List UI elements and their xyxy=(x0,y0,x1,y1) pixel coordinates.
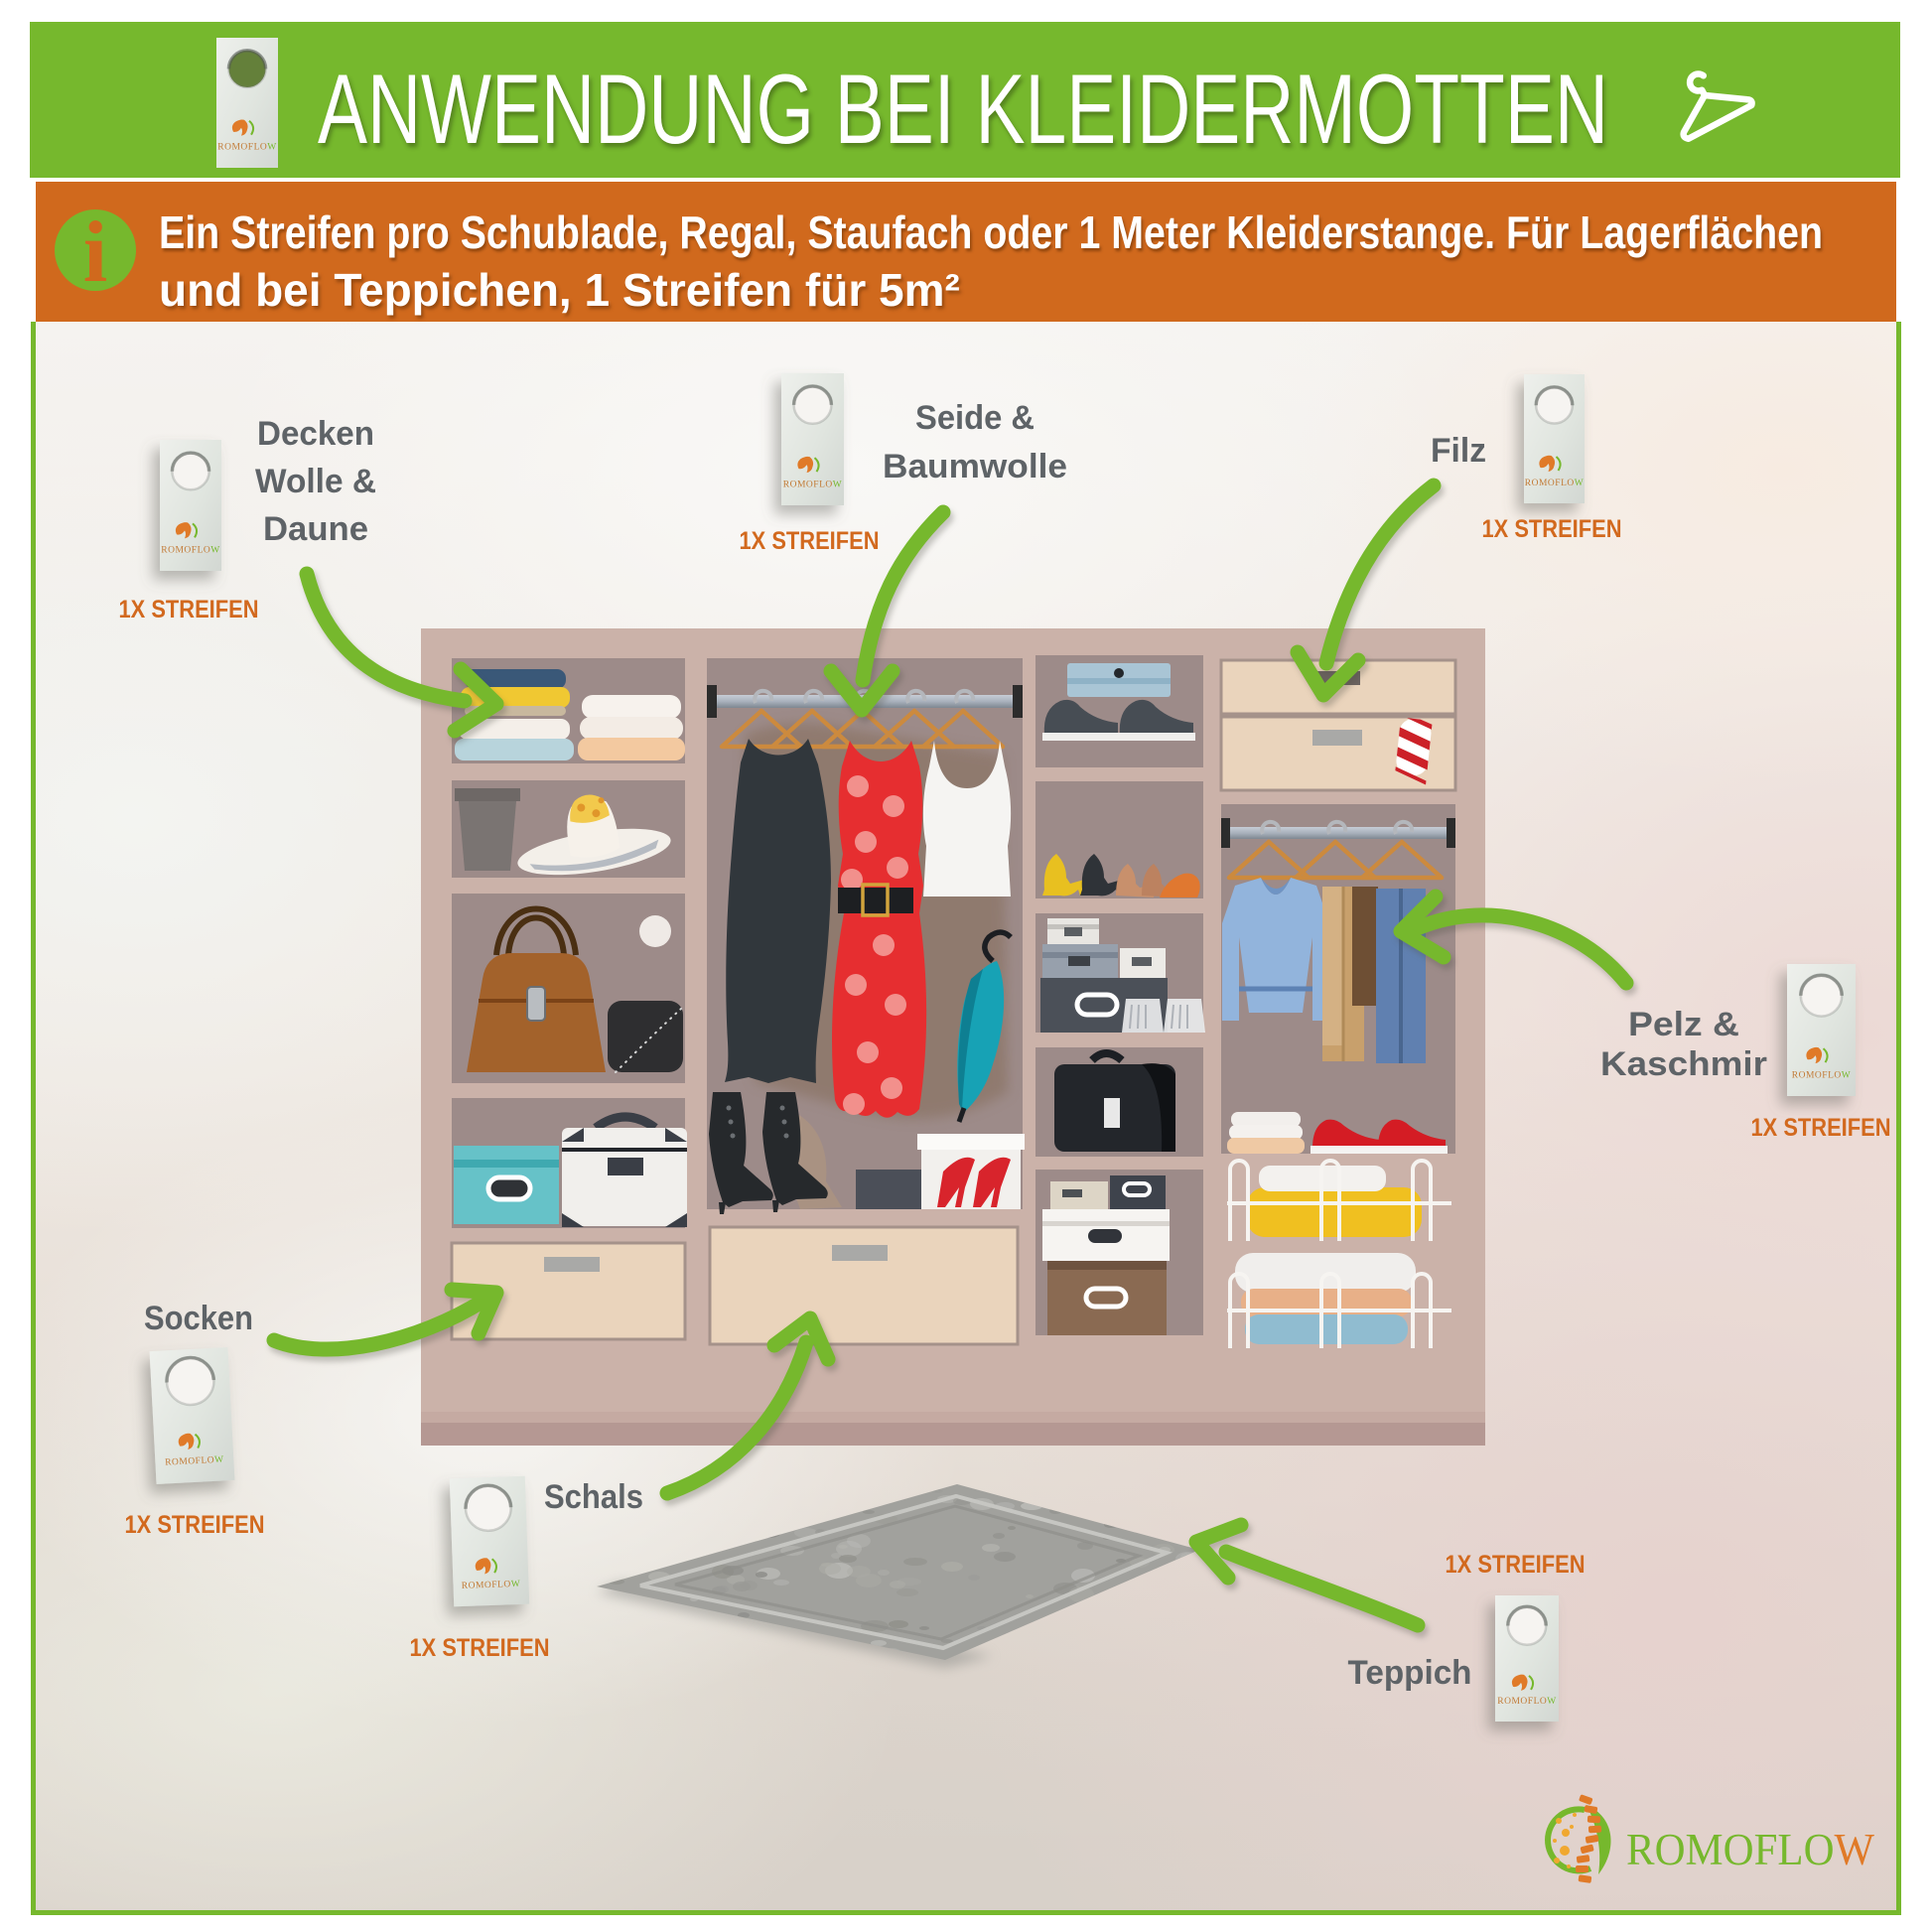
svg-text:Schals: Schals xyxy=(544,1478,643,1516)
svg-text:1X STREIFEN: 1X STREIFEN xyxy=(1482,515,1622,543)
svg-text:ROMOFLOW: ROMOFLOW xyxy=(1626,1825,1874,1874)
svg-text:Baumwolle: Baumwolle xyxy=(883,448,1067,485)
svg-text:ROMOFLOW: ROMOFLOW xyxy=(783,480,842,489)
svg-text:1X STREIFEN: 1X STREIFEN xyxy=(1751,1114,1891,1142)
svg-text:Decken: Decken xyxy=(257,415,374,453)
svg-text:i: i xyxy=(83,205,107,301)
svg-text:1X STREIFEN: 1X STREIFEN xyxy=(119,596,259,623)
svg-text:Socken: Socken xyxy=(144,1300,253,1337)
svg-text:Ein Streifen pro Schublade, Re: Ein Streifen pro Schublade, Regal, Stauf… xyxy=(159,207,1823,258)
svg-text:ANWENDUNG BEI KLEIDERMOTTEN: ANWENDUNG BEI KLEIDERMOTTEN xyxy=(318,54,1608,164)
svg-text:Filz: Filz xyxy=(1431,432,1486,470)
svg-text:Seide &: Seide & xyxy=(915,399,1035,437)
svg-text:Kaschmir: Kaschmir xyxy=(1600,1045,1767,1083)
svg-text:und bei Teppichen, 1 Streifen: und bei Teppichen, 1 Streifen für 5m² xyxy=(159,264,960,316)
svg-text:1X STREIFEN: 1X STREIFEN xyxy=(410,1634,550,1662)
svg-text:Pelz &: Pelz & xyxy=(1628,1006,1739,1043)
svg-text:Wolle &: Wolle & xyxy=(255,463,376,500)
svg-text:1X STREIFEN: 1X STREIFEN xyxy=(1446,1551,1586,1579)
svg-text:ROMOFLOW: ROMOFLOW xyxy=(462,1580,521,1591)
svg-text:ROMOFLOW: ROMOFLOW xyxy=(1792,1070,1851,1080)
svg-text:Daune: Daune xyxy=(263,510,368,548)
svg-text:ROMOFLOW: ROMOFLOW xyxy=(1497,1697,1556,1707)
svg-text:ROMOFLOW: ROMOFLOW xyxy=(161,546,219,556)
svg-text:1X STREIFEN: 1X STREIFEN xyxy=(740,527,880,555)
svg-text:1X STREIFEN: 1X STREIFEN xyxy=(125,1511,265,1539)
svg-text:Teppich: Teppich xyxy=(1348,1654,1472,1692)
svg-text:ROMOFLOW: ROMOFLOW xyxy=(217,143,276,153)
svg-text:ROMOFLOW: ROMOFLOW xyxy=(1525,479,1584,488)
